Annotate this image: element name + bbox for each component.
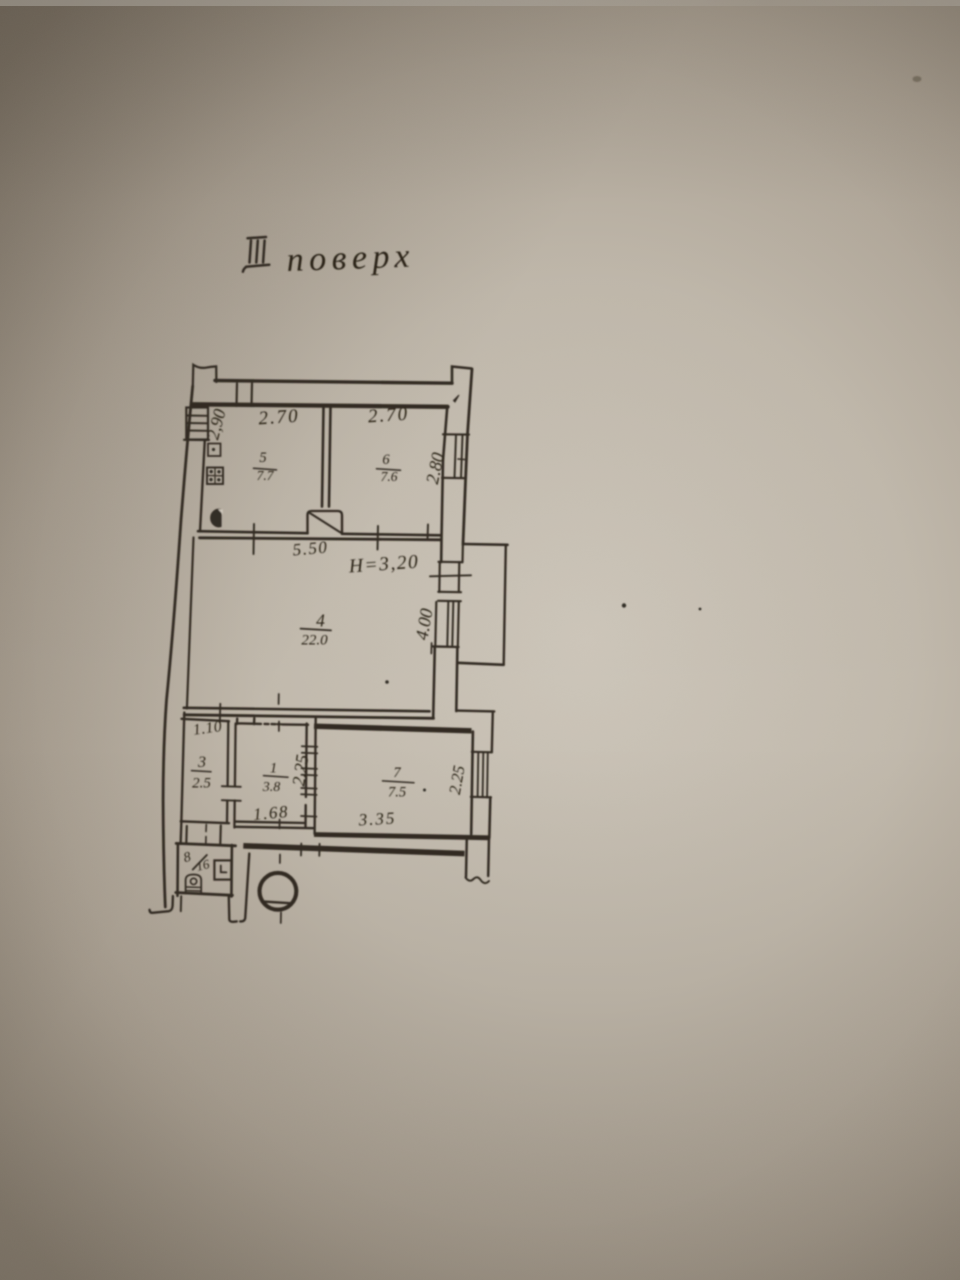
svg-text:3.35: 3.35 xyxy=(357,808,397,829)
svg-text:2.70: 2.70 xyxy=(367,404,410,428)
svg-text:7.6: 7.6 xyxy=(381,469,398,484)
svg-text:2.70: 2.70 xyxy=(258,406,301,430)
svg-text:6: 6 xyxy=(382,452,390,468)
svg-text:4: 4 xyxy=(316,611,325,631)
svg-text:7: 7 xyxy=(393,765,401,781)
svg-text:3: 3 xyxy=(197,754,206,771)
svg-text:5: 5 xyxy=(259,450,266,466)
svg-text:поверх: поверх xyxy=(286,238,415,279)
svg-text:3.8: 3.8 xyxy=(262,780,281,795)
svg-text:1.68: 1.68 xyxy=(252,802,289,824)
svg-text:5.50: 5.50 xyxy=(292,537,329,559)
svg-text:7.5: 7.5 xyxy=(388,785,406,801)
svg-text:22.0: 22.0 xyxy=(301,633,328,649)
svg-text:1: 1 xyxy=(270,761,277,777)
svg-text:2.5: 2.5 xyxy=(192,776,211,792)
